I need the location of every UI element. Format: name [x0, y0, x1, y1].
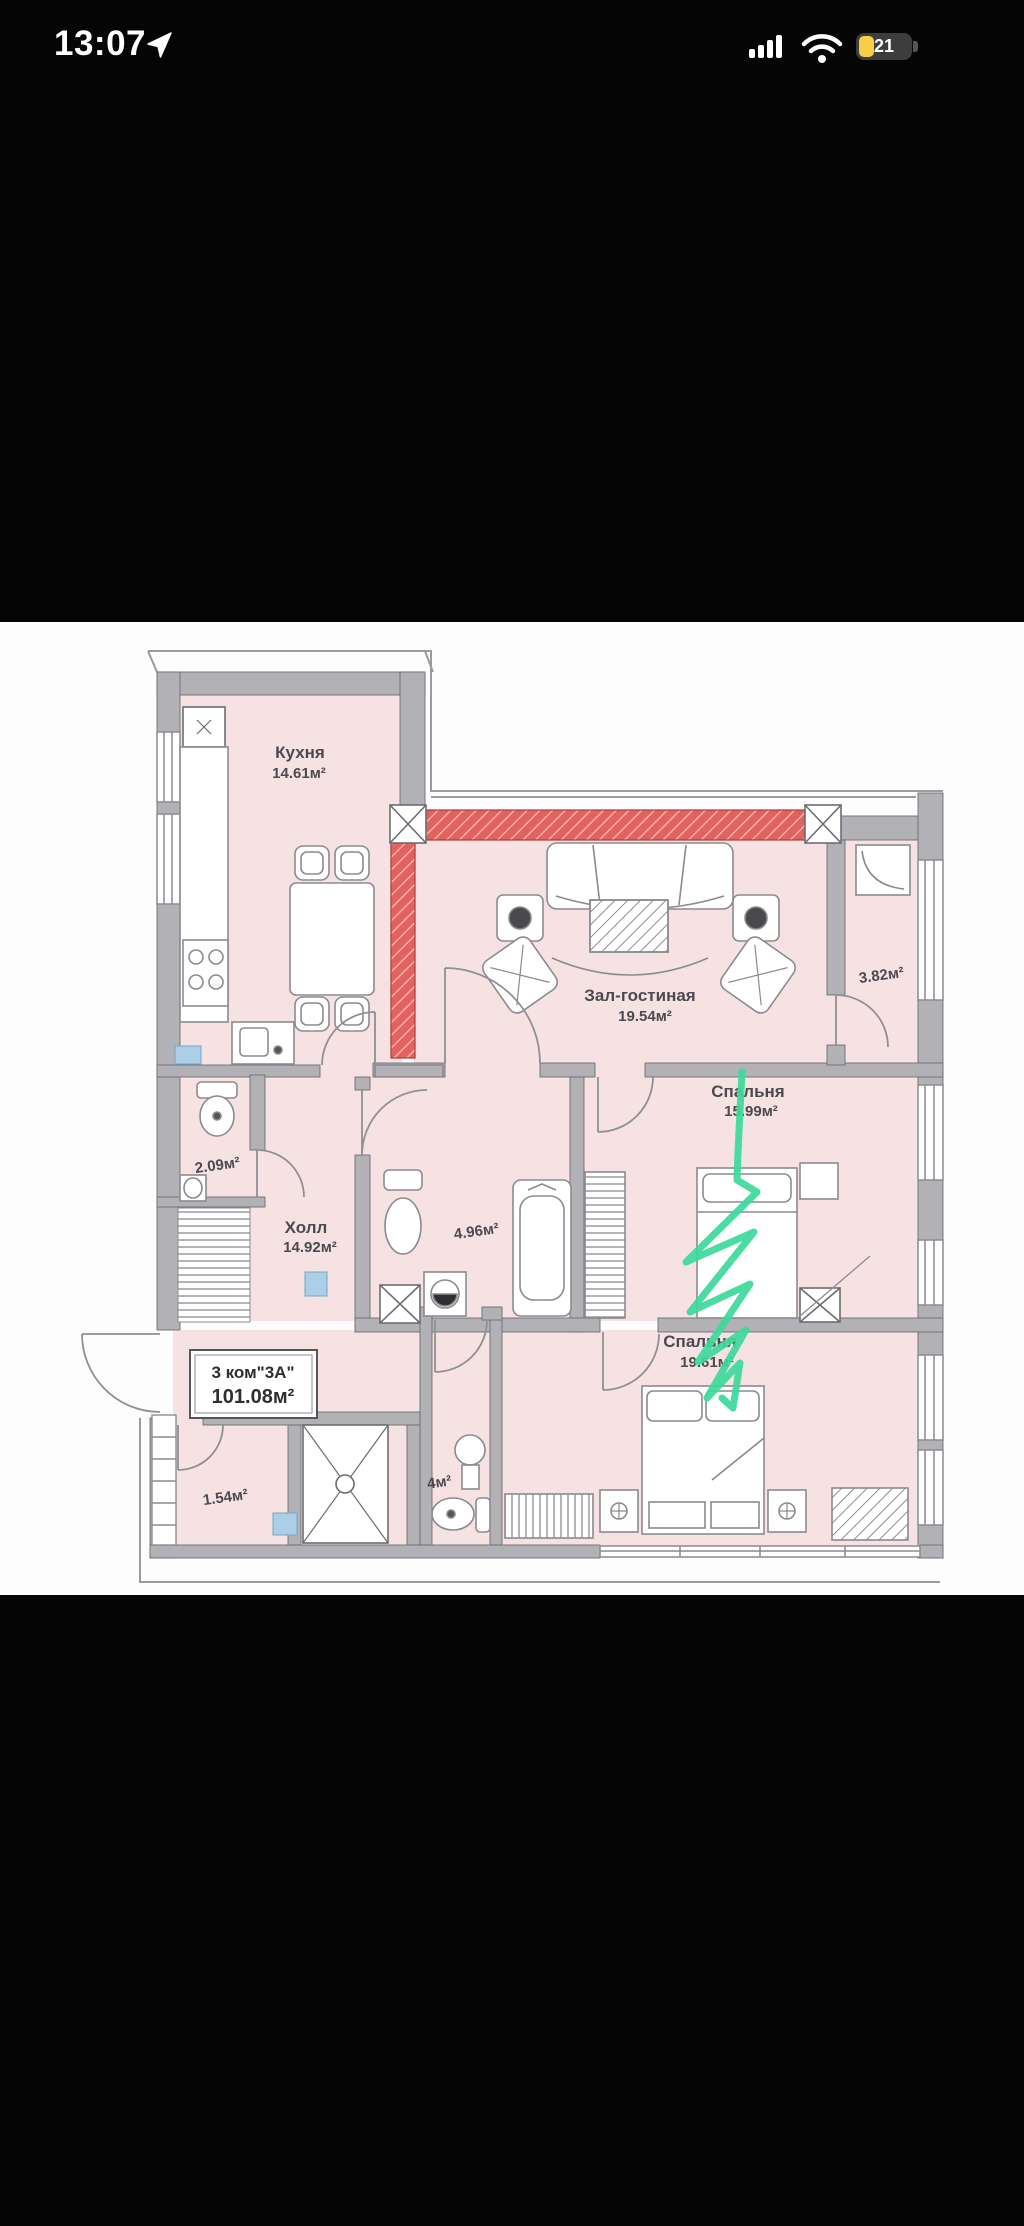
bedroom1-name-label: Спальня: [711, 1082, 784, 1101]
sofa-icon: [547, 843, 733, 909]
apartment-area-label: 101.08м²: [212, 1386, 295, 1408]
floor-plan-image: 3 ком"3А" 101.08м² Кухня 14.61м² Зал-гос…: [0, 0, 1024, 2226]
apartment-label-box: 3 ком"3А" 101.08м²: [190, 1350, 317, 1418]
washing-machine-icon: [424, 1272, 466, 1316]
living-area-label: 19.54м²: [618, 1008, 672, 1025]
kitchen-name-label: Кухня: [275, 743, 325, 762]
bathtub-icon: [513, 1180, 571, 1316]
coffee-table-icon: [590, 900, 668, 952]
stool-icon: [335, 846, 369, 880]
bedroom1-area-label: 15.99м²: [724, 1103, 778, 1120]
bed-icon: [642, 1386, 764, 1534]
nightstand-icon: [800, 1163, 838, 1199]
living-name-label: Зал-гостиная: [584, 986, 695, 1005]
balcony-chair-icon: [856, 845, 910, 895]
shower-cabin-icon: [303, 1425, 388, 1543]
window-bedroom2-right-icon: [918, 1355, 943, 1440]
stool-icon: [295, 846, 329, 880]
hall-name-label: Холл: [285, 1218, 328, 1237]
dining-table-icon: [290, 883, 374, 995]
wardrobe-icon: [505, 1494, 593, 1538]
lamp-table-icon: [733, 895, 779, 941]
window-kitchen-left2-icon: [157, 814, 180, 904]
window-bedroom2-bottom-icon: [600, 1546, 920, 1557]
column-icon: [805, 805, 841, 843]
window-kitchen-left-icon: [157, 732, 180, 802]
phone-screen: 13:07 21: [0, 0, 1024, 2226]
towel-rail-icon: [273, 1513, 297, 1535]
stove-icon: [183, 940, 228, 1006]
closet-icon: [585, 1172, 625, 1318]
stool-icon: [295, 997, 329, 1031]
hall-area-label: 14.92м²: [283, 1239, 337, 1256]
window-bedroom2-right2-icon: [918, 1450, 943, 1525]
toilet-icon: [384, 1170, 422, 1254]
bathroom2-area-label: 4м²: [426, 1472, 453, 1492]
nightstand-flower-icon: [600, 1490, 638, 1532]
towel-rail-icon: [175, 1046, 201, 1064]
dresser-icon: [832, 1488, 908, 1540]
apartment-type-label: 3 ком"3А": [211, 1363, 294, 1382]
column-icon: [390, 805, 426, 843]
nightstand-flower-icon: [768, 1490, 806, 1532]
window-balcony-right-icon: [918, 860, 943, 1000]
toilet-icon: [197, 1082, 237, 1136]
washbasin-icon: [180, 1175, 206, 1201]
lamp-table-icon: [497, 895, 543, 941]
window-bedroom1-right-icon: [918, 1085, 943, 1180]
vent-shaft-icon: [380, 1285, 420, 1323]
kitchen-sink-icon: [232, 1022, 294, 1064]
towel-rail-icon: [305, 1272, 327, 1296]
toilet-icon: [432, 1498, 490, 1532]
window-bedroom1-right2-icon: [918, 1240, 943, 1305]
vent-shaft-icon: [183, 707, 225, 747]
radiator-icon: [152, 1415, 176, 1545]
wardrobe-x-icon: [800, 1288, 840, 1322]
hall-wardrobe-icon: [178, 1208, 250, 1322]
kitchen-area-label: 14.61м²: [272, 765, 326, 782]
